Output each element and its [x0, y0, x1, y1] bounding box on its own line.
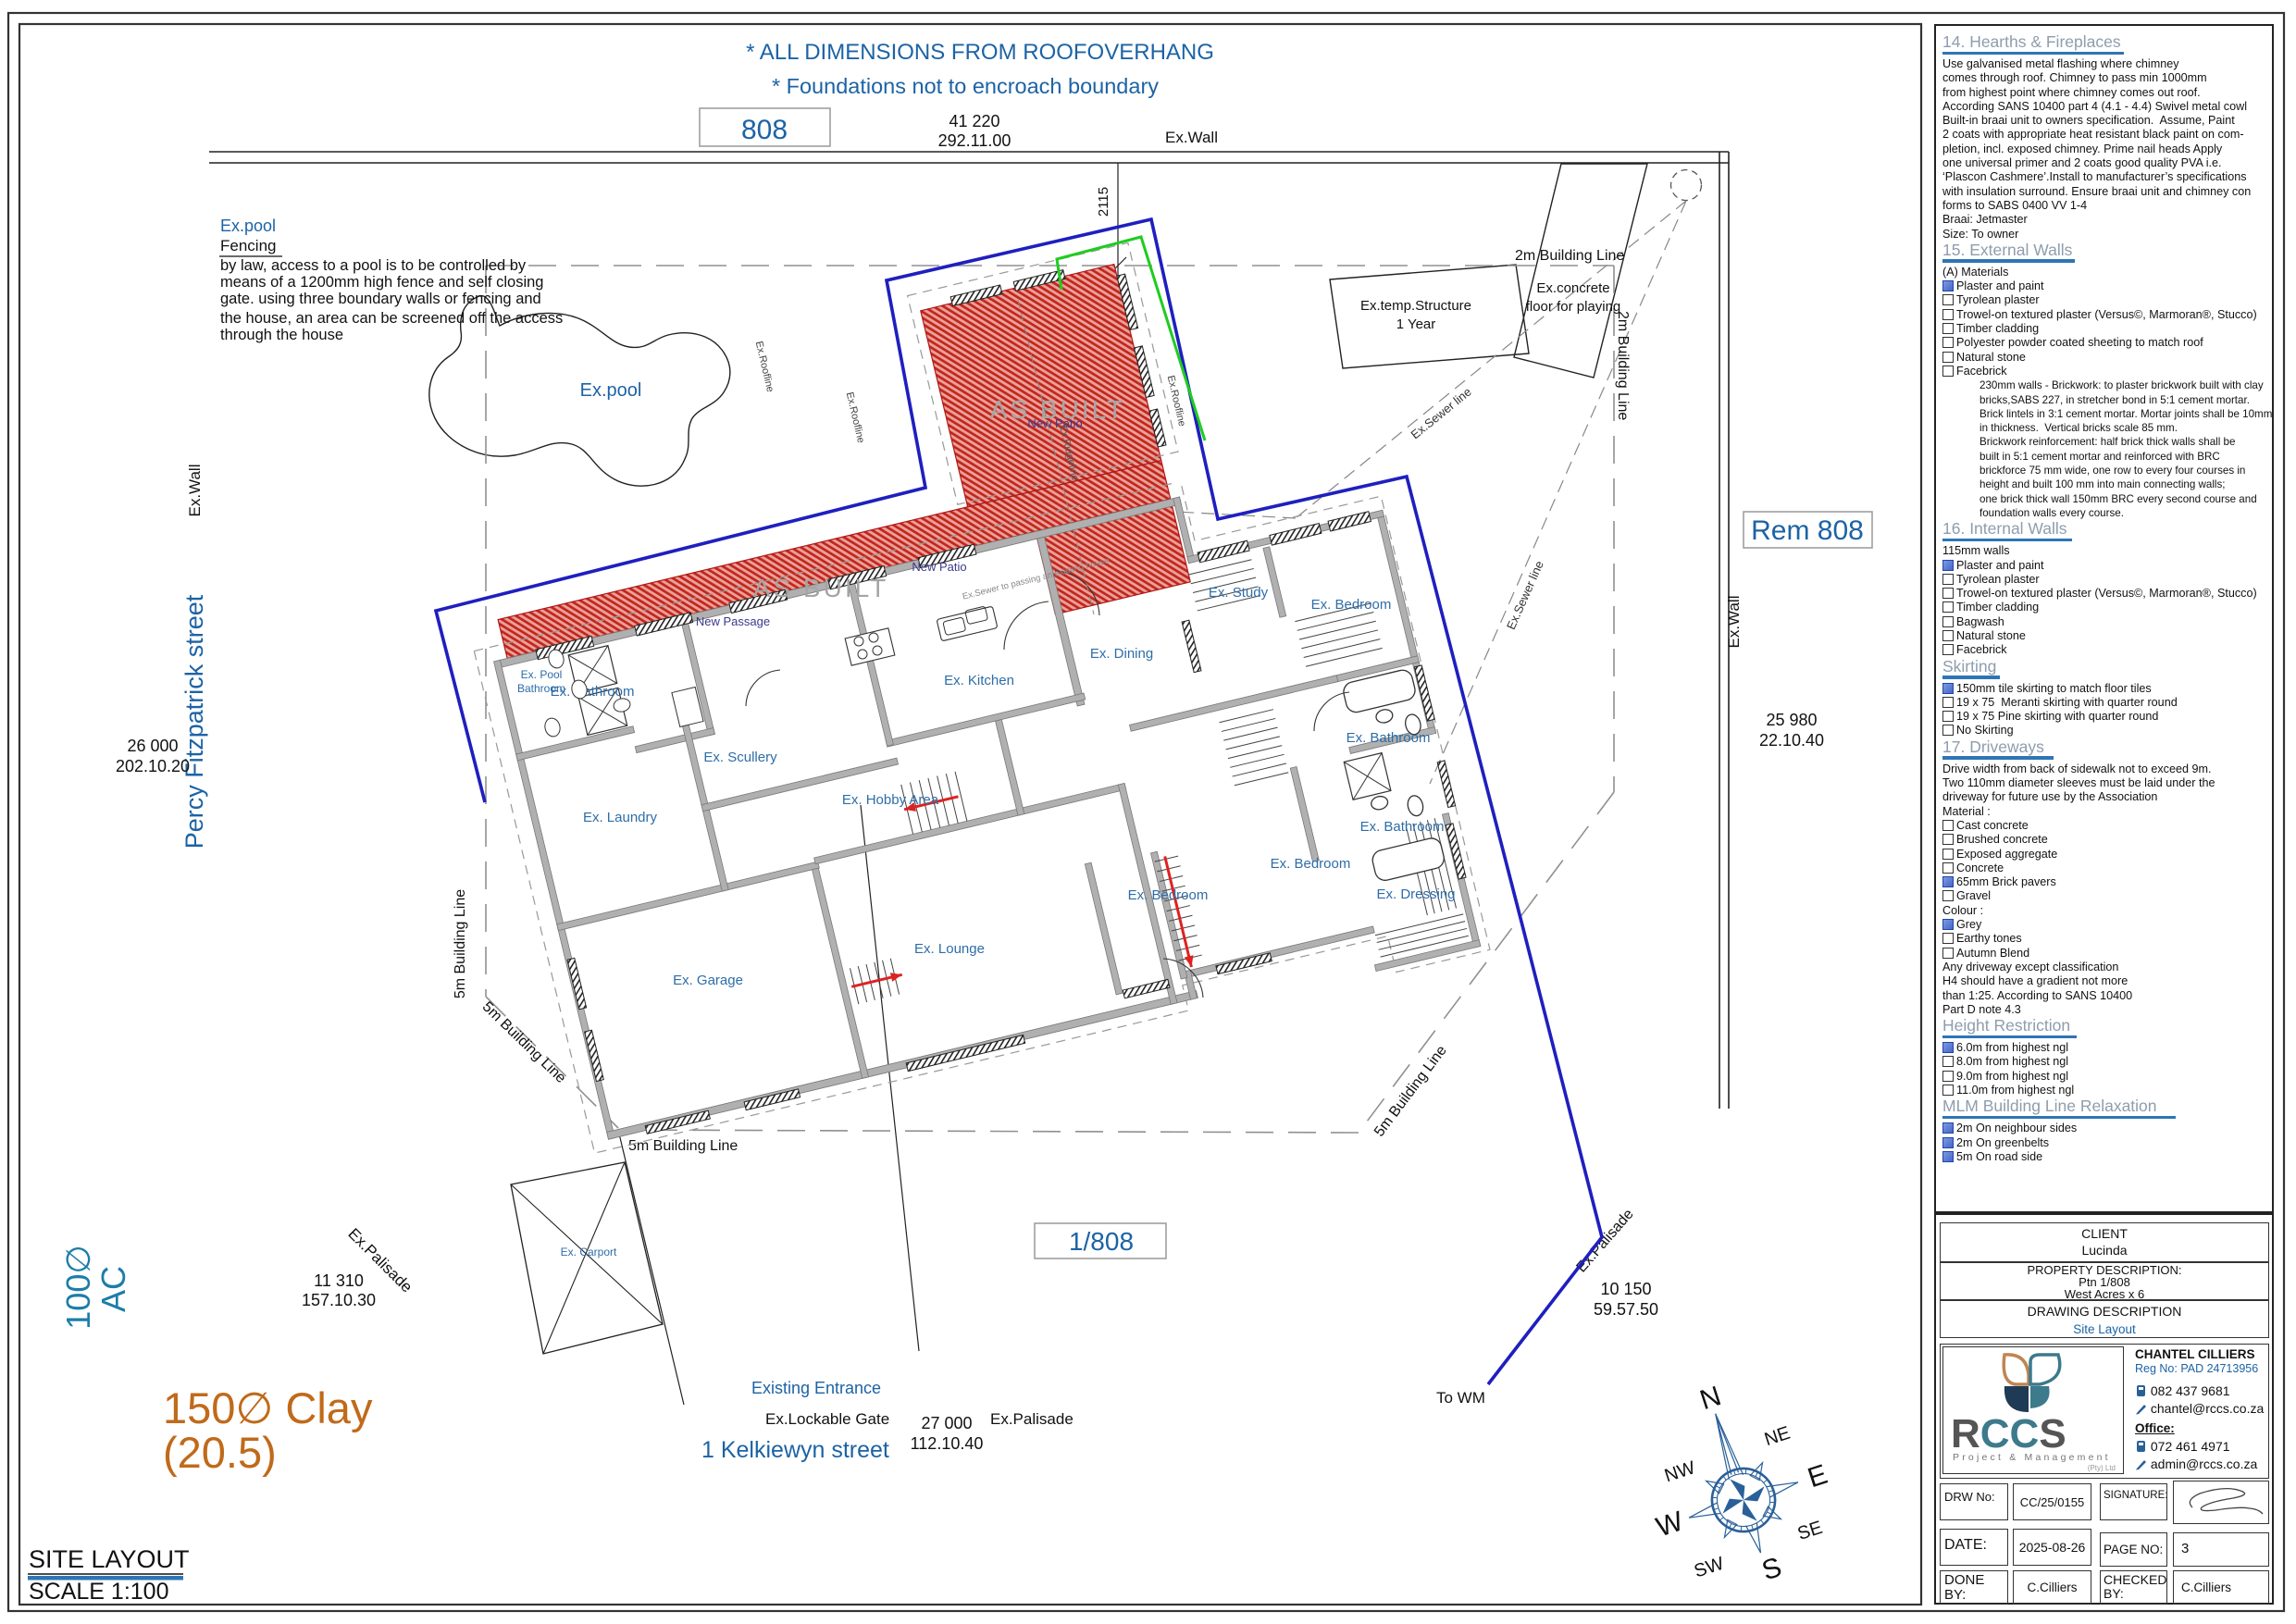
svg-text:N: N	[1696, 1381, 1725, 1416]
svg-text:2m Building Line: 2m Building Line	[1515, 248, 1624, 264]
svg-text:41 220: 41 220	[949, 112, 999, 130]
svg-text:To WM: To WM	[1436, 1389, 1485, 1407]
svg-text:59.57.50: 59.57.50	[1594, 1300, 1658, 1319]
svg-text:through the house: through the house	[220, 327, 343, 343]
svg-text:Ex. Garage: Ex. Garage	[673, 973, 743, 988]
svg-text:Ex.Roofline: Ex.Roofline	[844, 391, 866, 445]
svg-text:808: 808	[741, 115, 788, 145]
svg-text:Percy Fitzpatrick street: Percy Fitzpatrick street	[180, 594, 208, 849]
svg-text:Ex. Lounge: Ex. Lounge	[914, 941, 985, 957]
svg-text:2115: 2115	[1096, 187, 1111, 217]
svg-text:RCCS: RCCS	[1951, 1411, 2066, 1457]
svg-text:112.10.40: 112.10.40	[911, 1434, 984, 1453]
svg-text:Ex.temp.Structure: Ex.temp.Structure	[1360, 298, 1471, 314]
svg-text:292.11.00: 292.11.00	[938, 131, 1011, 150]
svg-text:S: S	[1758, 1552, 1785, 1587]
svg-text:Ex. Study: Ex. Study	[1209, 585, 1269, 601]
svg-text:SE: SE	[1795, 1518, 1825, 1544]
svg-text:Ex.Wall: Ex.Wall	[1725, 596, 1743, 649]
svg-text:Ex.Roofline: Ex.Roofline	[1165, 375, 1187, 428]
svg-text:Ex. Pool: Ex. Pool	[521, 668, 563, 681]
svg-text:SCALE 1:100: SCALE 1:100	[29, 1579, 169, 1605]
svg-text:11 310: 11 310	[314, 1271, 364, 1290]
svg-text:Ex. Bathroom: Ex. Bathroom	[551, 684, 635, 700]
svg-text:the house, an area can be scre: the house, an area can be screened off t…	[220, 310, 563, 327]
svg-text:22.10.40: 22.10.40	[1759, 731, 1824, 750]
svg-text:* Foundations not to encroach: * Foundations not to encroach boundary	[772, 74, 1159, 98]
svg-text:25 980: 25 980	[1766, 711, 1817, 729]
svg-text:Ex.concrete: Ex.concrete	[1536, 280, 1609, 296]
svg-text:floor for playing: floor for playing	[1526, 299, 1621, 315]
svg-text:5m Building Line: 5m Building Line	[1371, 1043, 1450, 1140]
svg-text:Ex.Palisade: Ex.Palisade	[990, 1410, 1074, 1428]
svg-text:157.10.30: 157.10.30	[302, 1291, 376, 1309]
svg-text:Ex.Wall: Ex.Wall	[186, 465, 204, 517]
svg-text:Ex.Sewer line: Ex.Sewer line	[1504, 559, 1546, 632]
svg-text:AS BUILT: AS BUILT	[753, 574, 888, 602]
svg-text:(20.5): (20.5)	[163, 1428, 277, 1477]
svg-text:10 150: 10 150	[1600, 1280, 1651, 1298]
svg-text:New Patio: New Patio	[912, 560, 966, 574]
svg-text:Ex.Wall: Ex.Wall	[1165, 129, 1218, 146]
svg-text:Ex.Lockable Gate: Ex.Lockable Gate	[765, 1410, 889, 1428]
svg-text:gate. using three boundary wal: gate. using three boundary walls or fenc…	[220, 291, 541, 307]
svg-text:Rem 808: Rem 808	[1751, 515, 1864, 546]
svg-text:150∅ Clay: 150∅ Clay	[163, 1383, 373, 1432]
svg-text:means of a 1200mm high fence a: means of a 1200mm high fence and self cl…	[220, 274, 543, 291]
svg-text:202.10.20: 202.10.20	[116, 757, 190, 775]
svg-text:by law, access to a pool is to: by law, access to a pool is to be contro…	[220, 257, 527, 274]
svg-text:New Patio: New Patio	[1027, 416, 1082, 430]
svg-text:Existing Entrance: Existing Entrance	[751, 1379, 881, 1397]
svg-text:Project & Management: Project & Management	[1953, 1452, 2111, 1463]
svg-text:1 Year: 1 Year	[1396, 316, 1436, 332]
svg-text:Ex. Dining: Ex. Dining	[1090, 646, 1153, 662]
svg-text:26 000: 26 000	[127, 737, 178, 755]
svg-text:5m Building Line: 5m Building Line	[453, 889, 468, 998]
svg-text:27 000: 27 000	[921, 1414, 972, 1432]
svg-text:W: W	[1653, 1506, 1688, 1543]
svg-text:1/808: 1/808	[1069, 1227, 1134, 1256]
svg-text:Ex. Bedroom: Ex. Bedroom	[1311, 597, 1392, 613]
svg-text:Ex. Hobby Area: Ex. Hobby Area	[842, 792, 939, 808]
svg-text:Ex. Scullery: Ex. Scullery	[703, 750, 777, 765]
svg-text:Fencing: Fencing	[220, 237, 276, 254]
svg-text:Ex.Roofline: Ex.Roofline	[753, 341, 776, 394]
svg-text:SW: SW	[1692, 1554, 1727, 1582]
svg-text:5m Building Line: 5m Building Line	[479, 999, 569, 1086]
svg-text:E: E	[1804, 1459, 1831, 1494]
svg-text:Ex. Laundry: Ex. Laundry	[583, 810, 658, 825]
svg-text:* ALL DIMENSIONS FROM ROOFOVER: * ALL DIMENSIONS FROM ROOFOVERHANG	[746, 40, 1214, 65]
svg-text:Ex. Bedroom: Ex. Bedroom	[1271, 856, 1351, 872]
svg-text:SITE LAYOUT: SITE LAYOUT	[29, 1545, 190, 1573]
svg-text:Ex. Kitchen: Ex. Kitchen	[944, 673, 1014, 688]
svg-text:100∅: 100∅	[59, 1245, 97, 1329]
svg-text:NE: NE	[1762, 1423, 1793, 1451]
svg-text:NW: NW	[1662, 1457, 1698, 1486]
svg-text:2m Building Line: 2m Building Line	[1615, 311, 1631, 420]
svg-text:Ex. Bathroom: Ex. Bathroom	[1347, 730, 1431, 746]
svg-text:Ex.pool: Ex.pool	[580, 380, 642, 401]
svg-text:Ex.pool: Ex.pool	[220, 217, 276, 235]
svg-text:(Pty) Ltd: (Pty) Ltd	[2088, 1464, 2116, 1472]
svg-text:Ex. Bedroom: Ex. Bedroom	[1128, 887, 1209, 903]
svg-text:Ex. Carport: Ex. Carport	[561, 1246, 617, 1258]
svg-text:Ex. Bathroom: Ex. Bathroom	[1360, 819, 1445, 835]
svg-text:Ex.Palisade: Ex.Palisade	[1573, 1207, 1636, 1276]
svg-text:New Passage: New Passage	[696, 614, 770, 628]
svg-text:Ex. Dressing: Ex. Dressing	[1376, 886, 1455, 902]
svg-text:AC: AC	[94, 1266, 132, 1312]
svg-text:1 Kelkiewyn street: 1 Kelkiewyn street	[701, 1437, 889, 1463]
svg-text:Ex.Sewer line: Ex.Sewer line	[1409, 385, 1474, 442]
